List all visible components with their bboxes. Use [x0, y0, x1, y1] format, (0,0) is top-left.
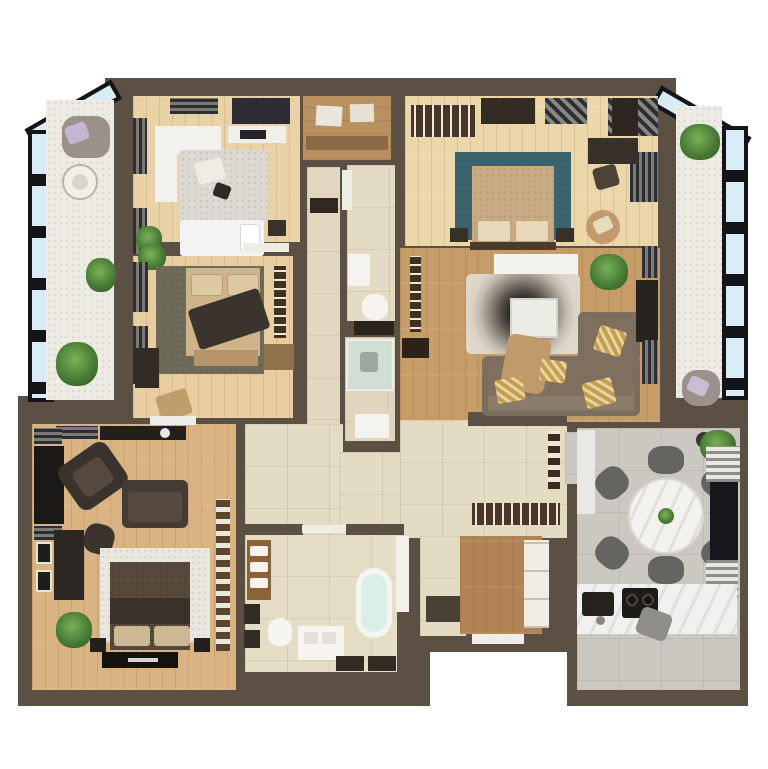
bathroom-sink [304, 632, 318, 644]
kitchen-burner [626, 594, 638, 606]
bedroom-midleft-bench [194, 350, 258, 366]
door-leaf [150, 416, 196, 425]
bedroom-topright-pillow [515, 220, 549, 242]
master-picture-frame [36, 570, 52, 592]
living-media-console [494, 254, 578, 276]
closet-storage-box [350, 104, 375, 123]
wc-toilet [362, 294, 388, 320]
bathroom-mat [244, 630, 260, 648]
master-sideboard [100, 426, 186, 440]
master-wardrobe-shelves [210, 494, 236, 656]
bathroom-door-leaf [302, 525, 346, 533]
closet-storage-box [315, 105, 342, 126]
kitchen-faucet [596, 616, 605, 625]
master-nightstand [90, 638, 106, 652]
kitchen-window [710, 482, 738, 560]
master-pillow [154, 626, 190, 646]
living-tv-cabinet [636, 280, 658, 342]
dining-chair [648, 446, 684, 474]
kitchen-sink [582, 592, 614, 616]
kids-side-table [268, 220, 286, 236]
master-runner-stripe [128, 658, 158, 662]
living-sofa-pillow [539, 358, 568, 383]
bathroom-bathtub-basin [361, 574, 387, 632]
corridor-shelf [310, 198, 338, 213]
bedroom-midleft-dresser [264, 344, 294, 370]
master-record-player [160, 428, 170, 438]
bedroom-topright-cabinet [612, 98, 638, 136]
kids-laptop [240, 130, 266, 139]
entry-door-leaf [472, 634, 524, 644]
bedroom-midleft-desk [135, 348, 159, 388]
balcony-table-tray [72, 174, 88, 190]
kids-window-blind [170, 98, 218, 114]
kids-desk [155, 154, 177, 202]
kitchen-window-blind [706, 446, 740, 482]
balcony-plant [680, 124, 720, 160]
bedroom-midleft-pillow [191, 274, 223, 296]
living-sofa-pillow [494, 376, 526, 404]
master-nightstand [194, 638, 210, 652]
bathroom-shelf [396, 536, 409, 612]
master-pillow [114, 626, 150, 646]
bathroom-sink [322, 632, 336, 644]
master-picture-frame [36, 542, 52, 564]
wall-bathroom-top-left [237, 524, 303, 535]
master-loveseat-seat [128, 492, 182, 522]
bathroom-towel [250, 546, 268, 556]
hallway-shoe-cabinet [542, 426, 566, 494]
bathroom-mat [244, 604, 260, 624]
vestibule-box-shelf [524, 540, 549, 628]
balcony-right-glass-wall [722, 126, 748, 400]
bathroom-mat [336, 656, 364, 671]
master-tv [34, 446, 64, 524]
kids-window-blind [133, 118, 147, 174]
bedroom-topright-pillow [477, 220, 511, 242]
balcony-plant [56, 342, 98, 386]
kitchen-tall-cabinet [577, 430, 595, 514]
living-blind [642, 246, 658, 278]
master-desk [54, 530, 84, 600]
bedroom-topright-wardrobe-hangers [405, 96, 481, 146]
dining-centerpiece [658, 508, 674, 524]
bedroom-topright-blind [545, 98, 587, 124]
kitchen-burner [642, 594, 654, 606]
bathroom-toilet [268, 618, 292, 646]
wc-sink [348, 254, 370, 286]
bathroom-mat [368, 656, 396, 671]
bathroom-towel [250, 578, 268, 588]
corridor-hanger-rack [402, 250, 429, 338]
balcony-plant [86, 258, 116, 292]
floor-plan-image [0, 0, 768, 769]
hallway-tile-left [245, 424, 343, 536]
hallway-coat-rack-hangers [466, 494, 566, 534]
master-bed-fold [110, 598, 190, 624]
bedroom-topright-headboard [470, 242, 556, 250]
master-blind [56, 426, 98, 439]
bedroom-topright-desk [588, 138, 638, 164]
shower-room-vanity [355, 414, 389, 438]
wall-bathroom-top-right [346, 524, 404, 535]
shower-tray [360, 352, 378, 372]
door-leaf [243, 243, 289, 252]
bedroom-midleft-blind [133, 262, 148, 312]
bedroom-midleft-wardrobe-hangers [266, 260, 294, 344]
bathroom-towel [250, 562, 268, 572]
closet-shelf [306, 136, 388, 150]
living-plant [590, 254, 628, 290]
master-plant [56, 612, 92, 648]
living-coffee-table [510, 298, 558, 338]
living-blind [642, 340, 658, 384]
bedroom-topright-nightstand [450, 228, 468, 242]
master-blind [34, 428, 62, 444]
kids-wardrobe-dark [232, 98, 290, 124]
hallway-doormat [426, 596, 460, 622]
bedroom-topright-cabinet [481, 98, 535, 124]
dining-chair [648, 556, 684, 584]
corridor-rack-shelf [402, 338, 429, 358]
door-leaf [342, 170, 352, 210]
bedroom-topright-nightstand [556, 228, 574, 242]
wc-counter [354, 321, 394, 335]
